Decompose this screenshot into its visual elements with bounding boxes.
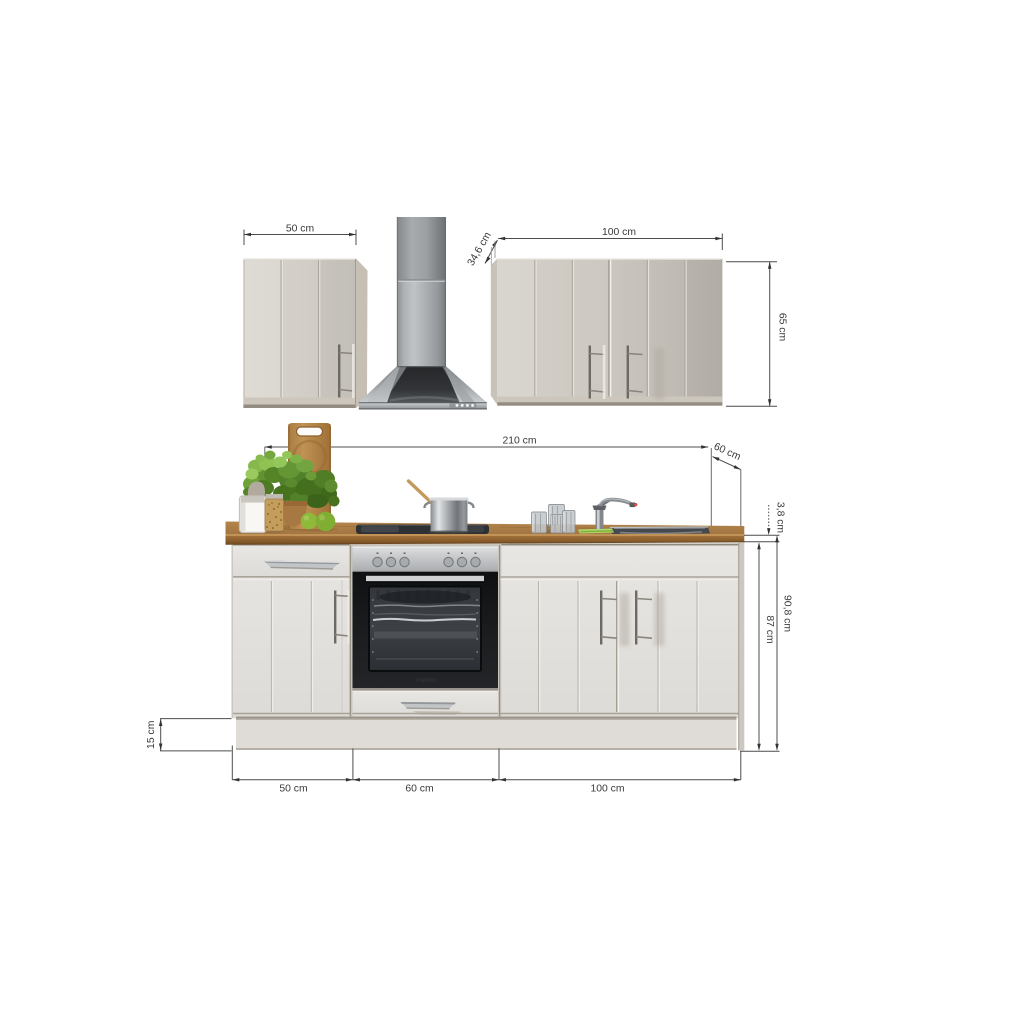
- svg-text:65 cm: 65 cm: [777, 313, 788, 341]
- svg-text:87 cm: 87 cm: [764, 615, 775, 643]
- svg-text:50 cm: 50 cm: [279, 784, 307, 795]
- svg-text:210 cm: 210 cm: [502, 436, 536, 447]
- svg-text:3,8 cm: 3,8 cm: [775, 502, 786, 533]
- svg-text:respekta: respekta: [416, 678, 435, 684]
- svg-text:15 cm: 15 cm: [146, 721, 157, 749]
- svg-text:60 cm: 60 cm: [405, 784, 433, 795]
- svg-text:50 cm: 50 cm: [286, 223, 314, 234]
- svg-text:90,8 cm: 90,8 cm: [782, 595, 793, 632]
- svg-text:100 cm: 100 cm: [590, 784, 624, 795]
- svg-text:100 cm: 100 cm: [602, 227, 636, 238]
